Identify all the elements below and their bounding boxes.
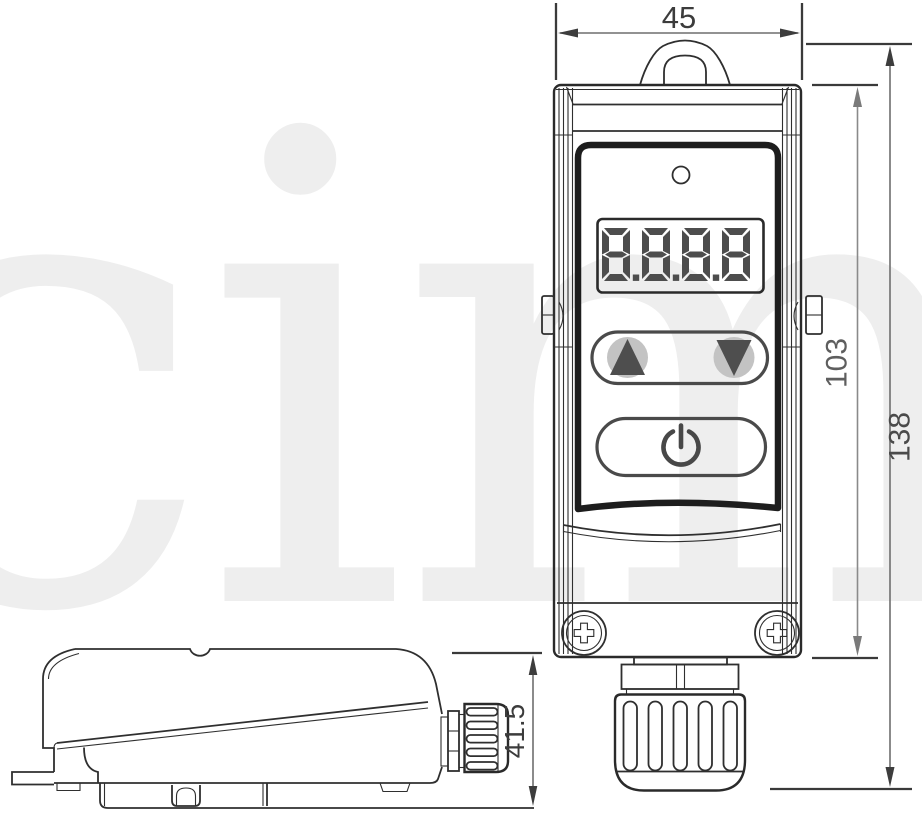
dim-depth-label: 41.5 xyxy=(499,704,530,759)
thermostat-drawing: 45 103 138 41.5 xyxy=(0,0,922,825)
hanging-loop xyxy=(640,41,730,86)
cable-gland-front xyxy=(615,658,745,791)
mounting-plate xyxy=(100,783,534,808)
side-latch-left xyxy=(542,296,563,334)
gland-ribs xyxy=(624,702,738,771)
arrow-buttons xyxy=(592,332,768,384)
screw-icon-left xyxy=(562,611,606,655)
cable-gland-side xyxy=(441,704,508,772)
side-view xyxy=(12,649,534,808)
led-indicator xyxy=(673,167,690,184)
power-button xyxy=(597,419,766,476)
gland-ribs-side xyxy=(467,708,498,770)
side-latch-right xyxy=(794,296,822,334)
dim-total-height-label: 138 xyxy=(884,412,917,462)
dim-width-label: 45 xyxy=(662,0,696,35)
dim-body-height-label: 103 xyxy=(821,338,854,388)
power-icon xyxy=(663,426,698,465)
side-outline-top xyxy=(75,649,442,714)
panel-lip xyxy=(564,524,781,542)
dimension-body-height: 103 xyxy=(812,85,878,658)
sensor-tab xyxy=(12,772,54,785)
screw-icon-right xyxy=(755,611,799,655)
technical-drawing-page: cima xyxy=(0,0,922,825)
display-digits xyxy=(602,228,750,281)
front-view xyxy=(542,41,822,791)
front-panel-border xyxy=(578,145,778,509)
top-band xyxy=(556,87,799,131)
